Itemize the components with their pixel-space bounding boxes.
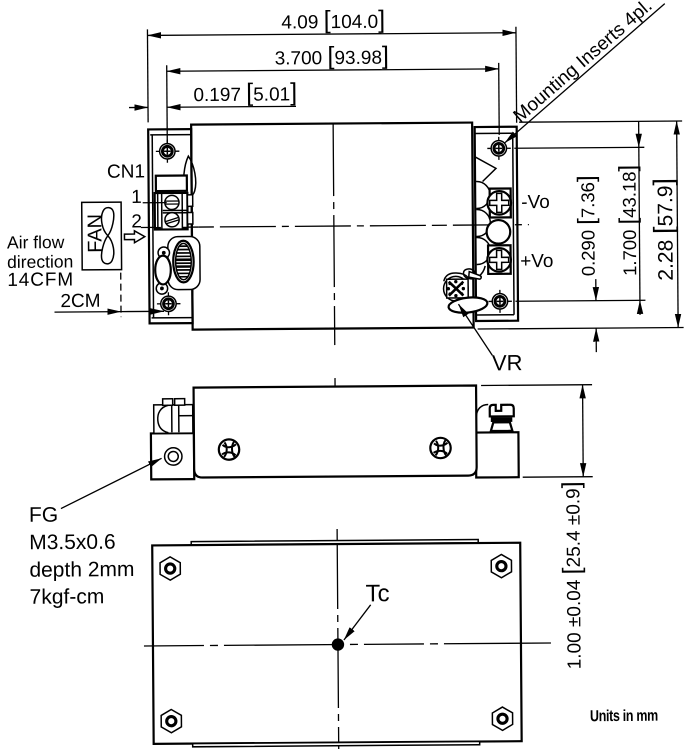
svg-text:Mounting Inserts 4pl.: Mounting Inserts 4pl.: [510, 0, 657, 127]
svg-text:depth 2mm: depth 2mm: [29, 558, 134, 582]
svg-text:0.290 [7.36]: 0.290 [7.36]: [573, 175, 601, 276]
svg-text:+Vo: +Vo: [520, 251, 553, 272]
svg-text:VR: VR: [492, 350, 523, 375]
svg-text:1: 1: [131, 187, 142, 208]
svg-text:Units in mm: Units in mm: [590, 707, 658, 725]
svg-text:2CM: 2CM: [60, 291, 100, 312]
svg-text:14CFM: 14CFM: [7, 269, 74, 290]
svg-text:1.00 ±0.04 [25.4 ±0.9]: 1.00 ±0.04 [25.4 ±0.9]: [557, 481, 586, 669]
svg-text:2: 2: [131, 211, 142, 232]
svg-text:3.700 [93.98]: 3.700 [93.98]: [275, 42, 389, 71]
svg-text:4.09 [104.0]: 4.09 [104.0]: [281, 6, 385, 35]
svg-text:Air flow: Air flow: [7, 232, 65, 252]
svg-text:-Vo: -Vo: [521, 192, 550, 213]
svg-text:2.28 [57.9]: 2.28 [57.9]: [648, 178, 679, 281]
svg-text:7kgf-cm: 7kgf-cm: [30, 585, 105, 609]
svg-text:1.700 [43.18]: 1.700 [43.18]: [614, 165, 642, 276]
svg-text:CN1: CN1: [107, 161, 145, 182]
svg-text:FG: FG: [29, 504, 58, 527]
svg-text:Tc: Tc: [365, 580, 389, 607]
svg-text:0.197 [5.01]: 0.197 [5.01]: [193, 78, 297, 107]
svg-text:M3.5x0.6: M3.5x0.6: [29, 531, 116, 555]
